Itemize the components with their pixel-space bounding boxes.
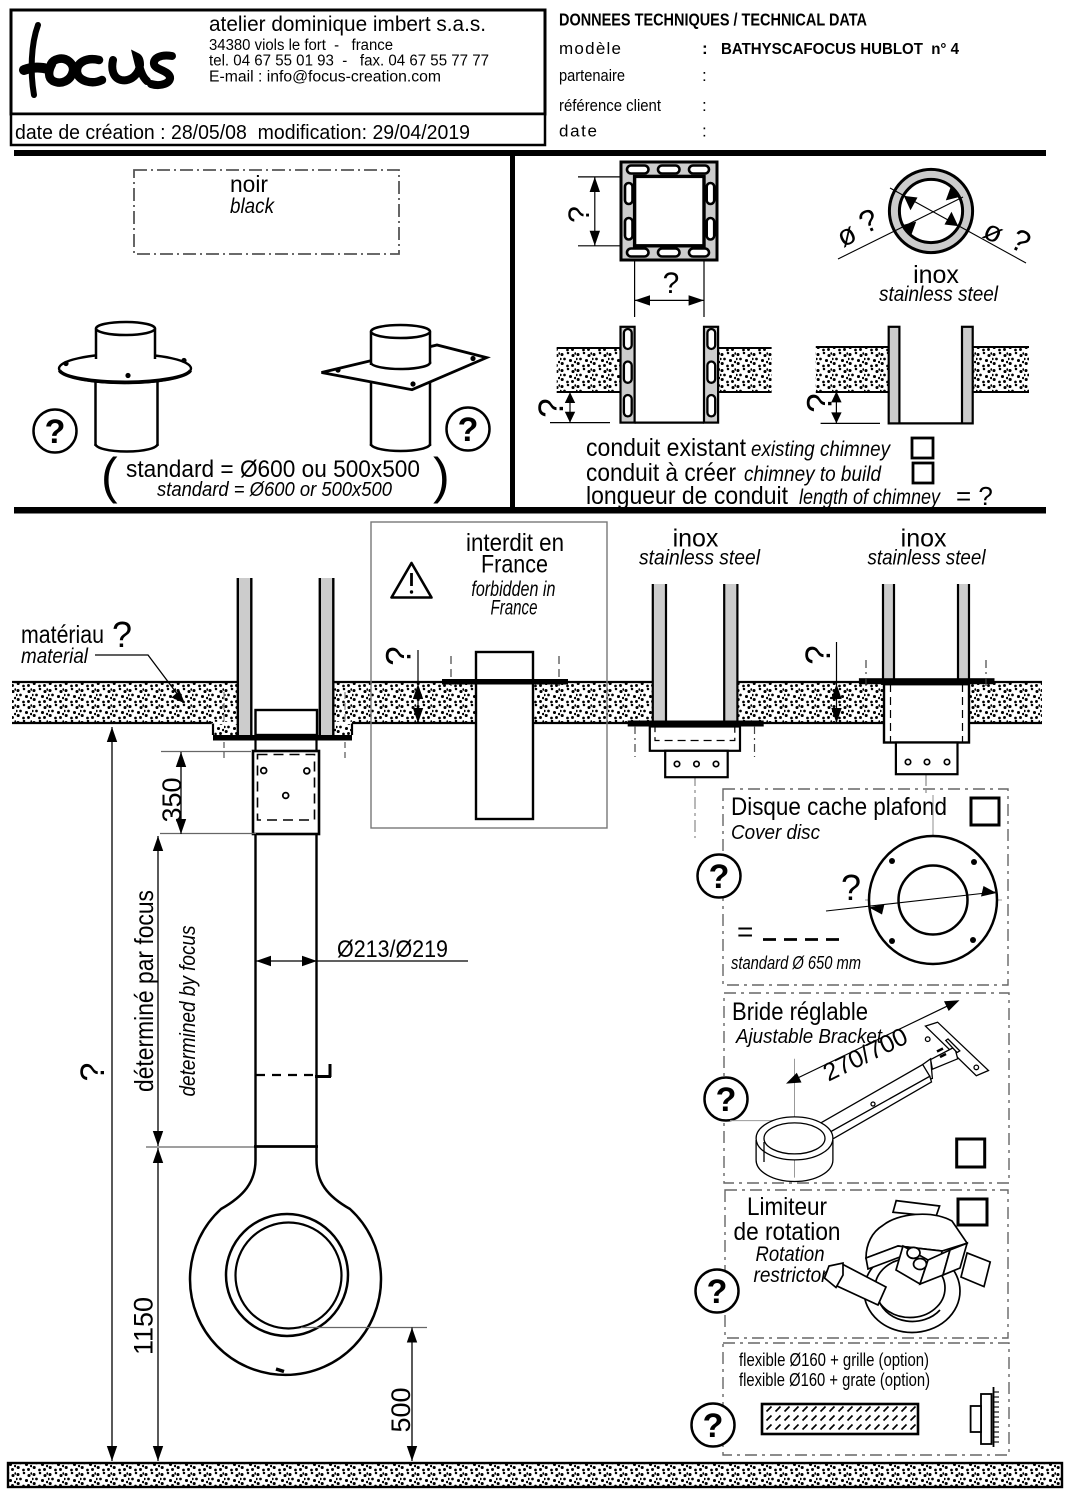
svg-text:France: France	[481, 551, 548, 579]
svg-text:material: material	[21, 645, 89, 668]
svg-text:E-mail : info@focus-creation.c: E-mail : info@focus-creation.com	[209, 69, 441, 86]
svg-text:tel. 04 67 55 01 93 - fax.: tel. 04 67 55 01 93 - fax. 04 67 55 77 7…	[209, 53, 489, 70]
svg-text:stainless steel: stainless steel	[639, 547, 761, 570]
svg-text:?: ?	[799, 645, 838, 664]
svg-text:stainless steel: stainless steel	[879, 283, 999, 306]
svg-text:?: ?	[458, 411, 479, 449]
svg-text:référence client: référence client	[559, 96, 661, 115]
svg-text:existing chimney: existing chimney	[751, 437, 891, 461]
svg-text:déterminé par focus: déterminé par focus	[129, 890, 159, 1092]
svg-text:length of chimney: length of chimney	[799, 485, 941, 509]
svg-text:?: ?	[74, 1063, 112, 1082]
svg-text:flexible Ø160 + grate (option): flexible Ø160 + grate (option)	[739, 1370, 930, 1390]
svg-text:stainless steel: stainless steel	[868, 547, 987, 570]
svg-text:modèle: modèle	[559, 39, 621, 58]
svg-text:date: date	[559, 122, 597, 141]
svg-text:?: ?	[703, 1407, 724, 1445]
svg-text:?: ?	[45, 413, 66, 451]
svg-text:DONNEES TECHNIQUES / TECHNICAL: DONNEES TECHNIQUES / TECHNICAL DATA	[559, 10, 867, 30]
svg-text:de rotation: de rotation	[734, 1218, 841, 1246]
svg-text:?: ?	[663, 267, 680, 300]
svg-text:black: black	[230, 195, 275, 218]
svg-text:noir: noir	[230, 171, 268, 197]
svg-text:longueur de conduit: longueur de conduit	[586, 482, 788, 510]
svg-text:=: =	[737, 916, 753, 947]
svg-text:Rotation: Rotation	[756, 1243, 825, 1266]
svg-text:Bride réglable: Bride réglable	[732, 998, 868, 1026]
svg-text:?: ?	[841, 867, 861, 908]
svg-text:500: 500	[386, 1387, 416, 1432]
svg-text:Limiteur: Limiteur	[747, 1193, 827, 1221]
svg-text:conduit existant: conduit existant	[586, 434, 746, 462]
svg-text:1150: 1150	[129, 1297, 159, 1355]
svg-text:?: ?	[112, 614, 132, 655]
svg-text:determined by focus: determined by focus	[175, 926, 200, 1097]
svg-text:?: ?	[707, 1273, 728, 1311]
svg-text::: :	[702, 122, 707, 141]
svg-text:34380 viols le fort - franc: 34380 viols le fort - france	[209, 37, 393, 54]
svg-text:?: ?	[801, 393, 840, 412]
svg-text:?: ?	[532, 398, 571, 417]
svg-text:?: ?	[716, 1081, 737, 1119]
svg-text:flexible Ø160 + grille (option: flexible Ø160 + grille (option)	[739, 1350, 929, 1370]
svg-text:standard = Ø600 or 500x500: standard = Ø600 or 500x500	[157, 479, 392, 501]
svg-text:restrictor: restrictor	[754, 1264, 829, 1287]
svg-text::: :	[702, 96, 707, 115]
svg-text::: :	[702, 66, 707, 85]
svg-text:partenaire: partenaire	[559, 66, 625, 85]
svg-text:?: ?	[380, 646, 419, 665]
svg-text:(: (	[101, 448, 118, 504]
svg-text:= ?: = ?	[956, 481, 993, 511]
svg-text:atelier dominique imbert s.a.s: atelier dominique imbert s.a.s.	[209, 13, 486, 36]
svg-text:date de création : 28/05/08 m: date de création : 28/05/08 modification…	[15, 122, 470, 144]
svg-text:?: ?	[709, 858, 730, 896]
svg-text:Ø213/Ø219: Ø213/Ø219	[337, 936, 448, 963]
svg-text:standard Ø 650 mm: standard Ø 650 mm	[731, 953, 861, 973]
svg-text:): )	[433, 448, 450, 504]
svg-text:350: 350	[157, 777, 187, 822]
svg-text:Cover disc: Cover disc	[731, 822, 820, 844]
svg-text:France: France	[491, 597, 538, 620]
svg-text::: :	[702, 39, 708, 58]
svg-text:?: ?	[563, 206, 596, 223]
svg-text:BATHYSCAFOCUS HUBLOT n° 4: BATHYSCAFOCUS HUBLOT n° 4	[721, 41, 959, 58]
svg-text:Disque cache plafond: Disque cache plafond	[731, 793, 947, 821]
